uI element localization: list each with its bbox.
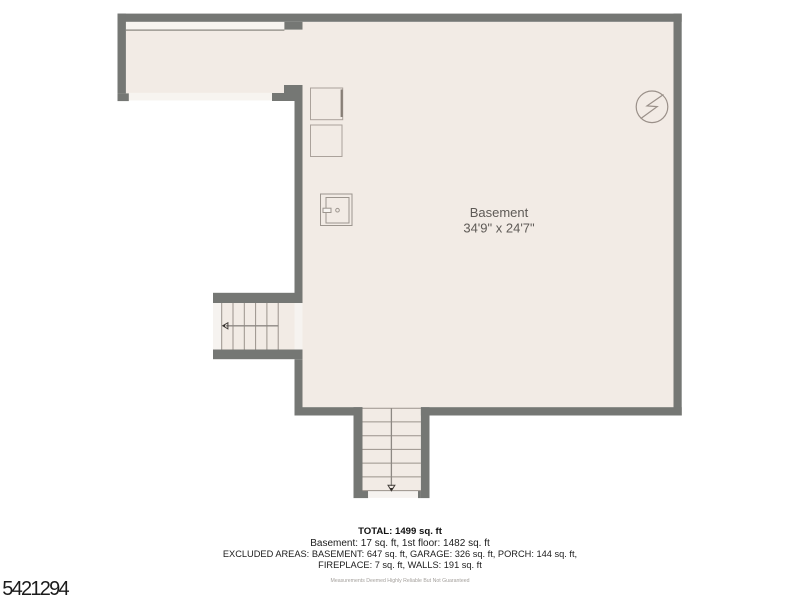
svg-text:34'9" x 24'7": 34'9" x 24'7" bbox=[463, 221, 535, 236]
svg-text:Basement: Basement bbox=[470, 205, 529, 220]
